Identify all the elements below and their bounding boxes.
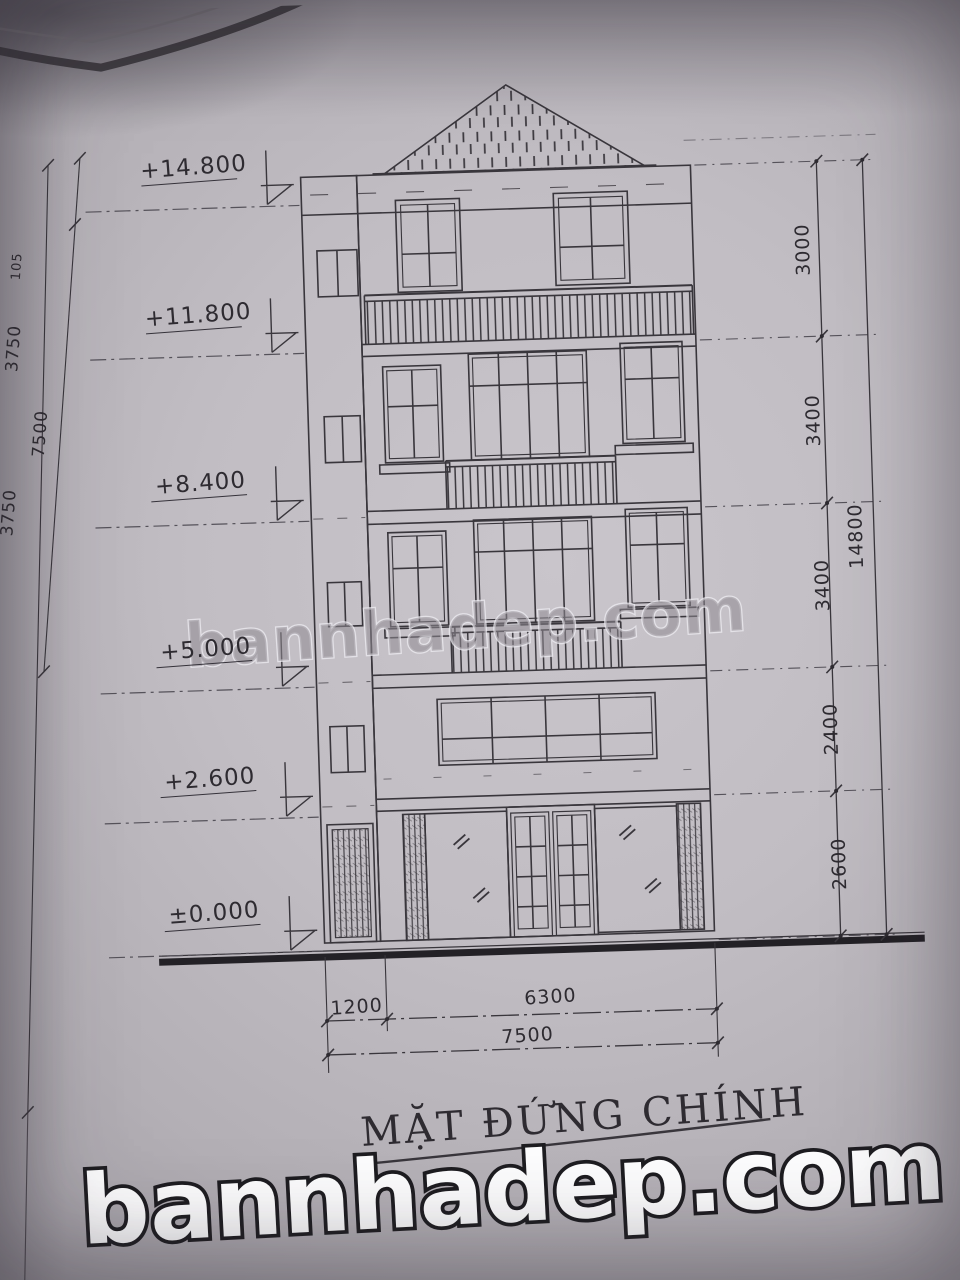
watermark-bottom: bannhadep.com xyxy=(78,1110,948,1267)
right-dimension-chain xyxy=(684,134,901,946)
storefront xyxy=(327,801,705,943)
left-dimension-chain xyxy=(0,152,121,1280)
floor4-windows xyxy=(376,341,694,474)
bottom-dimension-chain xyxy=(319,943,725,1074)
page-edge-curl xyxy=(0,0,326,72)
shop-glass-left xyxy=(425,811,511,940)
shop-glass-right xyxy=(595,806,681,933)
pilaster-windows xyxy=(315,250,373,773)
blueprint-photo: bannhadep.com bannhadep.com +14.800 +11.… xyxy=(0,0,960,1280)
folding-grille-right xyxy=(676,803,704,930)
level-dash-lines xyxy=(86,205,323,957)
floor2-band-window xyxy=(437,693,657,766)
floor4-balcony-railing xyxy=(446,456,617,509)
level-symbols xyxy=(260,150,318,951)
roof xyxy=(370,80,657,174)
floor5-balcony-railing xyxy=(364,285,693,344)
drawing-sheet: bannhadep.com bannhadep.com +14.800 +11.… xyxy=(0,0,960,1280)
elevation-drawing: bannhadep.com bannhadep.com xyxy=(0,0,960,1280)
building-elevation xyxy=(0,73,935,1280)
